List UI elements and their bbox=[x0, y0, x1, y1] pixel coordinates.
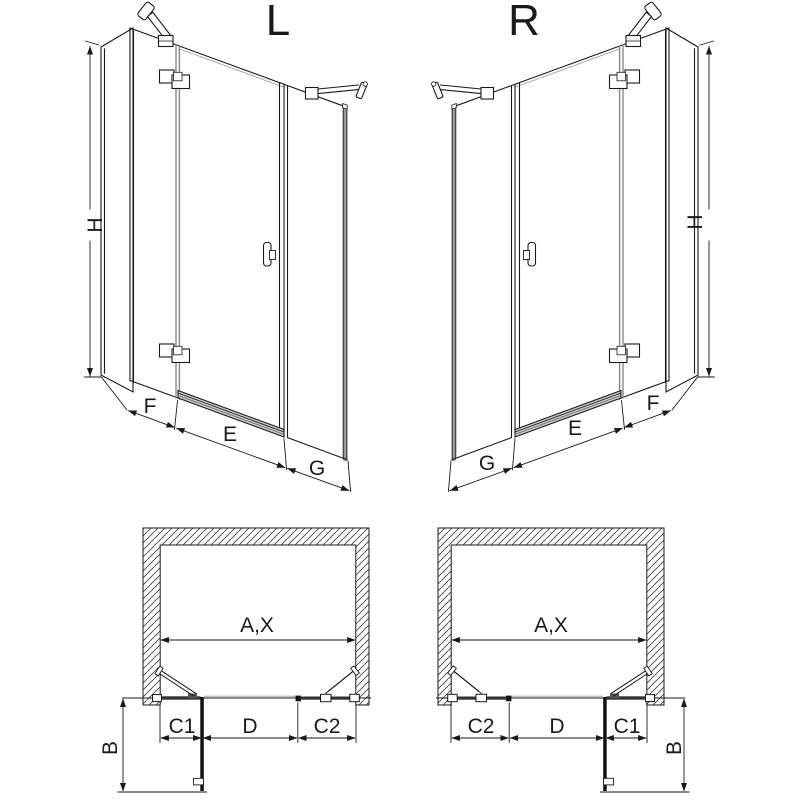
dim-C1-left-plan: C1 bbox=[169, 715, 196, 738]
dim-fixed-panel-G-right: G bbox=[479, 452, 495, 475]
dim-fixed-panel-G-left: G bbox=[309, 457, 325, 480]
shower-enclosure-diagram: L R H F E G H G E F A,X C1 D C2 B A,X C2… bbox=[0, 0, 800, 800]
right-plan-view bbox=[436, 528, 690, 792]
dim-B-left-plan: B bbox=[99, 741, 122, 755]
dim-B-right-plan: B bbox=[663, 741, 686, 755]
dim-opening-width-left-plan: A,X bbox=[240, 614, 274, 637]
dim-C2-right-plan: C2 bbox=[468, 715, 495, 738]
dim-C1-right-plan: C1 bbox=[614, 715, 641, 738]
dim-opening-width-right-plan: A,X bbox=[534, 614, 568, 637]
technical-drawing-page: L R H F E G H G E F A,X C1 D C2 B A,X C2… bbox=[0, 0, 800, 800]
labels: L R H F E G H G E F A,X C1 D C2 B A,X C2… bbox=[84, 0, 707, 755]
dim-D-left-plan: D bbox=[242, 715, 257, 738]
dim-fixed-panel-F-right: F bbox=[647, 392, 660, 415]
dim-door-E-right: E bbox=[568, 417, 582, 440]
title-right-variant: R bbox=[508, 0, 540, 45]
left-plan-view bbox=[118, 528, 372, 792]
left-3d-view bbox=[85, 1, 368, 491]
dim-D-right-plan: D bbox=[549, 715, 564, 738]
dim-door-E-left: E bbox=[223, 423, 237, 446]
dim-height-left: H bbox=[84, 217, 107, 232]
dim-C2-left-plan: C2 bbox=[314, 715, 341, 738]
title-left-variant: L bbox=[266, 0, 290, 45]
dim-height-right: H bbox=[684, 214, 707, 229]
dim-fixed-panel-F-left: F bbox=[144, 395, 157, 418]
